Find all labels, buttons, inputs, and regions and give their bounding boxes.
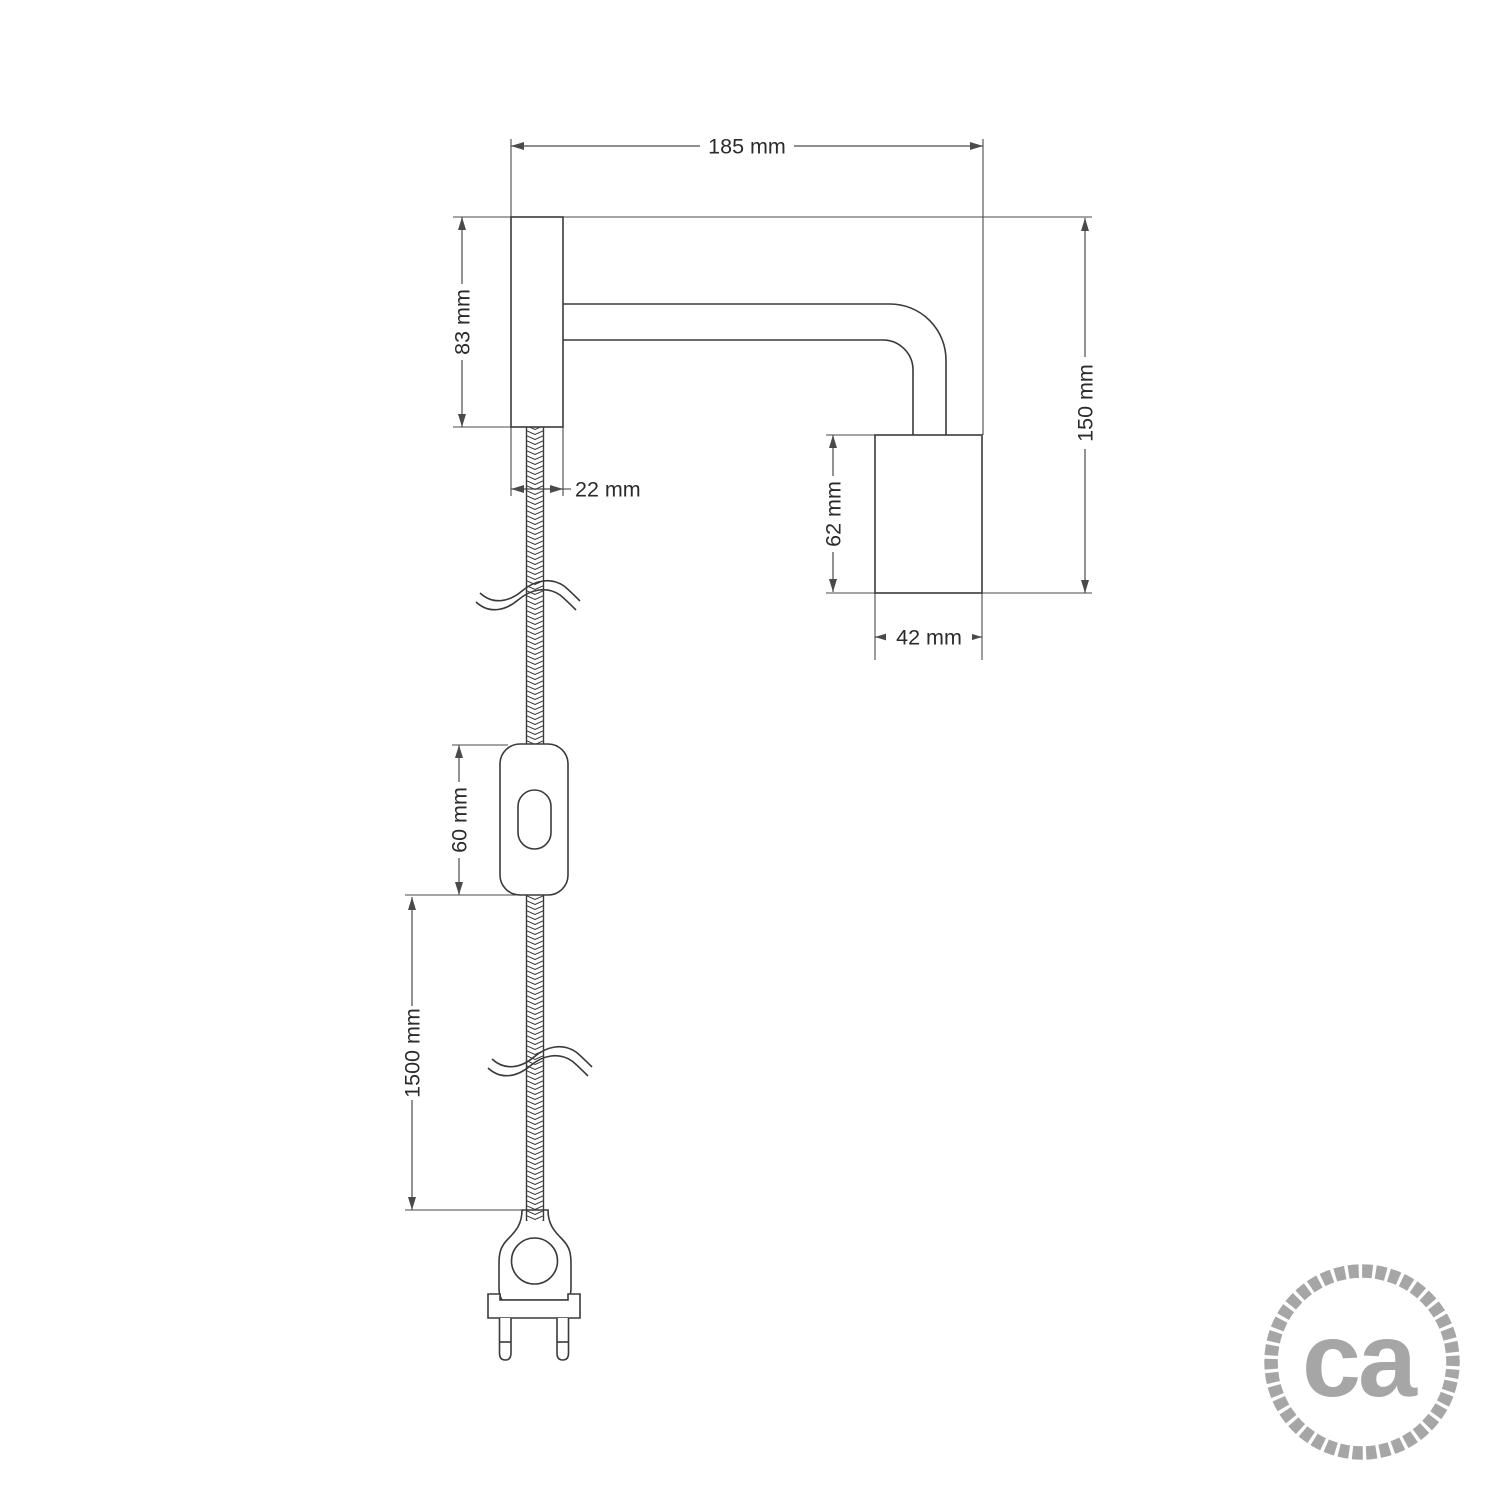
plug-prong-right <box>557 1318 569 1360</box>
dimension-label-plate-width: 22 mm <box>575 478 641 502</box>
lamp-dimension-diagram: 185 mm 83 mm 22 mm 150 mm 62 mm 42 mm 60… <box>0 0 1500 1500</box>
dimension-label-plate-height: 83 mm <box>451 289 475 355</box>
dimension-label-socket-height: 62 mm <box>822 481 846 547</box>
dimension-label-socket-width: 42 mm <box>896 626 962 650</box>
logo-text: ca <box>1302 1301 1418 1419</box>
switch-button <box>518 790 551 849</box>
wall-plate <box>511 217 563 427</box>
inline-switch <box>500 744 568 895</box>
dimension-label-total-height: 150 mm <box>1074 364 1098 442</box>
lamp-arm-inner-edge <box>563 340 913 435</box>
dimension-label-total-width: 185 mm <box>708 135 786 159</box>
plug-prong-left <box>500 1318 512 1360</box>
cable-upper <box>476 427 580 745</box>
technical-drawing-canvas: 185 mm 83 mm 22 mm 150 mm 62 mm 42 mm 60… <box>0 0 1500 1500</box>
lamp-arm-outer-edge <box>563 304 946 435</box>
brand-logo: ca <box>1257 1257 1468 1468</box>
dimension-label-switch-length: 60 mm <box>448 787 472 853</box>
socket-body <box>875 435 982 593</box>
plug-hole <box>512 1238 558 1284</box>
lamp-fixture <box>511 217 982 593</box>
extension-lines <box>405 139 1092 1210</box>
cable-lower <box>488 895 592 1221</box>
dimension-label-cable-length: 1500 mm <box>401 1008 425 1098</box>
power-plug <box>488 1210 580 1360</box>
dimension-labels: 185 mm 83 mm 22 mm 150 mm 62 mm 42 mm 60… <box>401 135 1098 1101</box>
